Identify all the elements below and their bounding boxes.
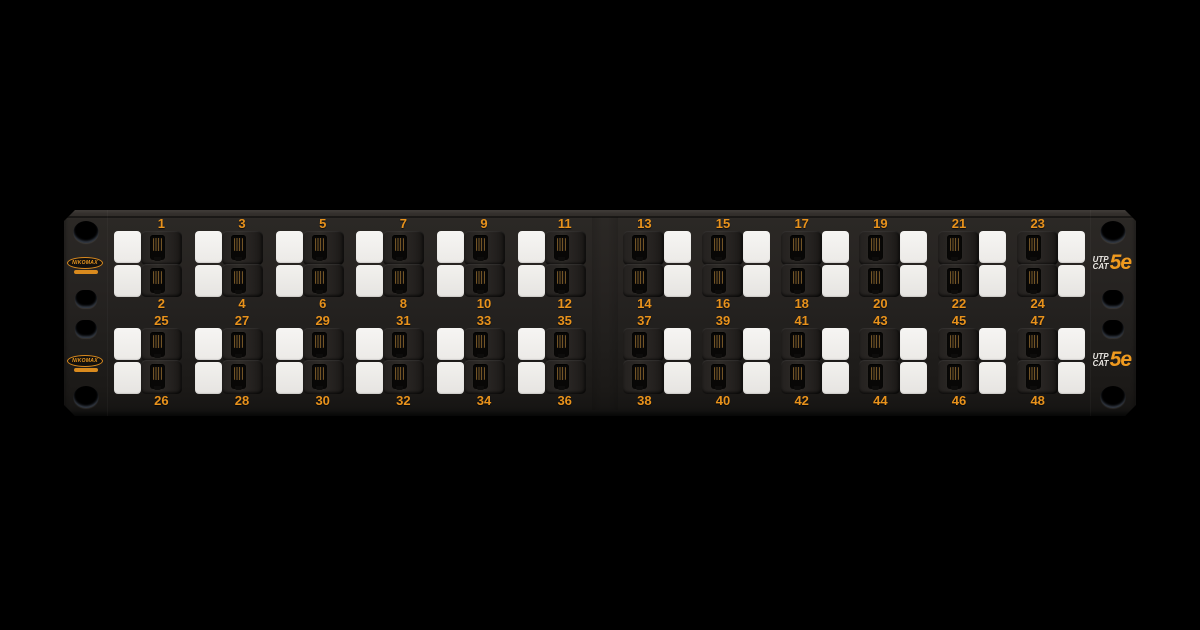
label-pad-top bbox=[1058, 231, 1085, 263]
label-pad bbox=[518, 231, 545, 297]
port-module: 31 32 bbox=[350, 314, 431, 411]
mounting-hole bbox=[1101, 386, 1126, 408]
label-pad bbox=[437, 231, 464, 297]
brand-logo-oval: NIKOMAX bbox=[67, 257, 103, 269]
gold-pins-icon bbox=[871, 335, 880, 348]
brand-name: NIKOMAX bbox=[72, 359, 98, 364]
rj45-socket-icon bbox=[473, 268, 488, 293]
rj45-jack-bottom bbox=[938, 264, 979, 298]
gold-pins-icon bbox=[1029, 367, 1038, 380]
rj45-jack-bottom bbox=[545, 360, 586, 394]
rj45-socket-icon bbox=[312, 268, 327, 293]
label-pad-top bbox=[114, 328, 141, 360]
keystone-pair bbox=[518, 328, 586, 394]
gold-pins-icon bbox=[793, 367, 802, 380]
label-pad bbox=[979, 328, 1006, 394]
rj45-socket-icon bbox=[947, 364, 962, 389]
port-module: 29 30 bbox=[269, 314, 350, 411]
keystone-pair bbox=[437, 328, 505, 394]
rj45-socket-icon bbox=[711, 235, 726, 260]
rj45-jack-top bbox=[938, 231, 979, 265]
rj45-jack-block bbox=[222, 231, 263, 297]
rj45-socket-icon bbox=[473, 364, 488, 389]
label-pad-bottom bbox=[900, 362, 927, 394]
rj45-jack-top bbox=[623, 231, 664, 265]
rj45-jack-block bbox=[545, 231, 586, 297]
rj45-socket-icon bbox=[554, 332, 569, 357]
rj45-jack-top bbox=[222, 328, 263, 362]
port-number-top: 21 bbox=[920, 217, 999, 231]
rj45-jack-top bbox=[1017, 328, 1058, 362]
rj45-socket-icon bbox=[632, 364, 647, 389]
label-pad bbox=[664, 231, 691, 297]
mounting-hole bbox=[74, 386, 99, 408]
gold-pins-icon bbox=[315, 271, 324, 284]
keystone-pair bbox=[276, 231, 344, 297]
rj45-jack-bottom bbox=[303, 360, 344, 394]
gold-pins-icon bbox=[234, 335, 243, 348]
rating-grade-text: 5e bbox=[1110, 351, 1131, 369]
port-number-bottom: 6 bbox=[282, 297, 363, 311]
rj45-socket-icon bbox=[790, 268, 805, 293]
rj45-jack-bottom bbox=[702, 360, 743, 394]
rj45-socket-icon bbox=[554, 268, 569, 293]
port-number-bottom: 22 bbox=[920, 297, 999, 311]
mounting-hole bbox=[1102, 290, 1124, 308]
port-number-bottom: 34 bbox=[444, 394, 525, 408]
rj45-jack-top bbox=[859, 231, 900, 265]
rj45-socket-icon bbox=[947, 235, 962, 260]
rj45-jack-top bbox=[702, 231, 743, 265]
rating-cat-text: CAT bbox=[1093, 263, 1109, 270]
rj45-jack-bottom bbox=[938, 360, 979, 394]
keystone-pair bbox=[781, 231, 849, 297]
port-number-bottom: 24 bbox=[998, 297, 1077, 311]
rj45-jack-top bbox=[141, 231, 182, 265]
label-pad-bottom bbox=[195, 362, 222, 394]
label-pad-bottom bbox=[518, 265, 545, 297]
rating-grade-text: 5e bbox=[1110, 254, 1131, 272]
label-pad bbox=[114, 231, 141, 297]
label-pad-top bbox=[822, 328, 849, 360]
rj45-socket-icon bbox=[790, 332, 805, 357]
label-pad-bottom bbox=[664, 265, 691, 297]
gold-pins-icon bbox=[315, 238, 324, 251]
port-module: 11 12 bbox=[511, 217, 592, 314]
port-group-upper-left: 1 2 3 bbox=[108, 217, 592, 314]
gold-pins-icon bbox=[476, 335, 485, 348]
rj45-jack-block bbox=[141, 231, 182, 297]
rj45-jack-block bbox=[545, 328, 586, 394]
label-pad-bottom bbox=[114, 265, 141, 297]
rj45-jack-top bbox=[383, 328, 424, 362]
label-pad-top bbox=[664, 231, 691, 263]
port-number-top: 47 bbox=[998, 314, 1077, 328]
label-pad-bottom bbox=[518, 362, 545, 394]
label-pad-bottom bbox=[356, 265, 383, 297]
label-pad-top bbox=[822, 231, 849, 263]
label-pad-bottom bbox=[276, 265, 303, 297]
rj45-socket-icon bbox=[312, 332, 327, 357]
gold-pins-icon bbox=[395, 238, 404, 251]
cable-rating-label: UTP CAT 5e bbox=[1093, 254, 1131, 272]
port-module: 5 6 bbox=[269, 217, 350, 314]
gold-pins-icon bbox=[234, 367, 243, 380]
keystone-pair bbox=[938, 328, 1006, 394]
label-pad-top bbox=[664, 328, 691, 360]
rj45-jack-block bbox=[781, 328, 822, 394]
rj45-jack-block bbox=[702, 328, 743, 394]
rj45-socket-icon bbox=[150, 268, 165, 293]
label-pad bbox=[195, 231, 222, 297]
rj45-jack-top bbox=[623, 328, 664, 362]
rj45-socket-icon bbox=[868, 235, 883, 260]
rj45-socket-icon bbox=[392, 235, 407, 260]
label-pad-top bbox=[900, 328, 927, 360]
port-number-top: 45 bbox=[920, 314, 999, 328]
label-pad-bottom bbox=[900, 265, 927, 297]
rj45-jack-block bbox=[938, 231, 979, 297]
port-number-top: 5 bbox=[282, 217, 363, 231]
label-pad-bottom bbox=[743, 265, 770, 297]
brand-logo: NIKOMAX bbox=[67, 257, 105, 274]
rj45-socket-icon bbox=[473, 332, 488, 357]
label-pad bbox=[743, 328, 770, 394]
gold-pins-icon bbox=[1029, 238, 1038, 251]
port-number-top: 39 bbox=[684, 314, 763, 328]
rj45-socket-icon bbox=[312, 235, 327, 260]
gold-pins-icon bbox=[871, 367, 880, 380]
rj45-socket-icon bbox=[632, 268, 647, 293]
mounting-hole bbox=[1102, 320, 1124, 338]
gold-pins-icon bbox=[234, 271, 243, 284]
rj45-jack-block bbox=[859, 328, 900, 394]
keystone-pair bbox=[702, 231, 770, 297]
rj45-socket-icon bbox=[392, 364, 407, 389]
port-module: 47 48 bbox=[1011, 314, 1090, 411]
rj45-jack-bottom bbox=[141, 360, 182, 394]
label-pad-top bbox=[1058, 328, 1085, 360]
rj45-jack-bottom bbox=[464, 264, 505, 298]
rj45-jack-top bbox=[938, 328, 979, 362]
gold-pins-icon bbox=[476, 367, 485, 380]
rj45-socket-icon bbox=[312, 364, 327, 389]
rj45-jack-top bbox=[781, 328, 822, 362]
label-pad-top bbox=[743, 231, 770, 263]
right-mounting-ear: UTP CAT 5e UTP CAT 5e bbox=[1090, 210, 1136, 416]
rj45-jack-bottom bbox=[545, 264, 586, 298]
rj45-jack-top bbox=[303, 328, 344, 362]
rj45-socket-icon bbox=[473, 235, 488, 260]
gold-pins-icon bbox=[793, 335, 802, 348]
rj45-jack-bottom bbox=[464, 360, 505, 394]
label-pad bbox=[900, 231, 927, 297]
port-number-top: 7 bbox=[363, 217, 444, 231]
rating-type-text: UTP CAT bbox=[1093, 256, 1109, 270]
gold-pins-icon bbox=[635, 367, 644, 380]
keystone-pair bbox=[356, 231, 424, 297]
brand-logo-oval: NIKOMAX bbox=[67, 355, 103, 367]
rj45-jack-bottom bbox=[781, 264, 822, 298]
keystone-pair bbox=[276, 328, 344, 394]
rj45-jack-top bbox=[464, 328, 505, 362]
keystone-pair bbox=[623, 328, 691, 394]
port-number-top: 9 bbox=[444, 217, 525, 231]
label-pad-top bbox=[195, 328, 222, 360]
gold-pins-icon bbox=[871, 238, 880, 251]
rj45-socket-icon bbox=[554, 235, 569, 260]
gold-pins-icon bbox=[315, 335, 324, 348]
rj45-jack-block bbox=[702, 231, 743, 297]
rj45-socket-icon bbox=[868, 332, 883, 357]
label-pad-top bbox=[518, 328, 545, 360]
label-pad-bottom bbox=[114, 362, 141, 394]
label-pad-bottom bbox=[356, 362, 383, 394]
brand-logo: NIKOMAX bbox=[67, 355, 105, 372]
port-number-top: 31 bbox=[363, 314, 444, 328]
port-face: 1 2 3 bbox=[108, 210, 1090, 416]
cable-rating-label: UTP CAT 5e bbox=[1093, 351, 1131, 369]
port-group-lower-left: 25 26 27 bbox=[108, 314, 592, 411]
rj45-socket-icon bbox=[947, 332, 962, 357]
label-pad bbox=[518, 328, 545, 394]
rating-cat-text: CAT bbox=[1093, 360, 1109, 367]
port-number-top: 15 bbox=[684, 217, 763, 231]
brand-name: NIKOMAX bbox=[72, 261, 98, 266]
rj45-socket-icon bbox=[392, 268, 407, 293]
port-module: 3 4 bbox=[189, 217, 270, 314]
port-module: 23 24 bbox=[1011, 217, 1090, 314]
port-number-top: 25 bbox=[121, 314, 202, 328]
rj45-jack-bottom bbox=[141, 264, 182, 298]
rj45-socket-icon bbox=[1026, 332, 1041, 357]
gold-pins-icon bbox=[315, 367, 324, 380]
port-module: 7 8 bbox=[350, 217, 431, 314]
rj45-socket-icon bbox=[231, 364, 246, 389]
rj45-jack-block bbox=[938, 328, 979, 394]
port-module: 25 26 bbox=[108, 314, 189, 411]
label-pad bbox=[276, 231, 303, 297]
gold-pins-icon bbox=[395, 367, 404, 380]
rj45-socket-icon bbox=[554, 364, 569, 389]
gold-pins-icon bbox=[950, 335, 959, 348]
label-pad bbox=[743, 231, 770, 297]
label-pad-top bbox=[195, 231, 222, 263]
port-number-top: 13 bbox=[605, 217, 684, 231]
rj45-socket-icon bbox=[711, 364, 726, 389]
port-number-top: 43 bbox=[841, 314, 920, 328]
port-number-bottom: 48 bbox=[998, 394, 1077, 408]
port-number-top: 11 bbox=[524, 217, 605, 231]
keystone-pair bbox=[437, 231, 505, 297]
keystone-pair bbox=[781, 328, 849, 394]
rj45-jack-block bbox=[383, 231, 424, 297]
port-number-bottom: 16 bbox=[684, 297, 763, 311]
port-group-lower-right: 37 38 39 bbox=[618, 314, 1090, 411]
keystone-pair bbox=[859, 328, 927, 394]
rj45-jack-top bbox=[702, 328, 743, 362]
gold-pins-icon bbox=[635, 271, 644, 284]
rj45-jack-bottom bbox=[859, 264, 900, 298]
label-pad-bottom bbox=[979, 265, 1006, 297]
rj45-jack-top bbox=[545, 328, 586, 362]
label-pad-bottom bbox=[195, 265, 222, 297]
rj45-jack-bottom bbox=[303, 264, 344, 298]
gold-pins-icon bbox=[557, 238, 566, 251]
mounting-hole bbox=[74, 221, 99, 243]
port-number-top: 35 bbox=[524, 314, 605, 328]
gold-pins-icon bbox=[153, 335, 162, 348]
label-pad-bottom bbox=[437, 265, 464, 297]
label-pad bbox=[195, 328, 222, 394]
rj45-jack-top bbox=[222, 231, 263, 265]
rj45-socket-icon bbox=[1026, 268, 1041, 293]
keystone-pair bbox=[114, 328, 182, 394]
port-number-bottom: 36 bbox=[524, 394, 605, 408]
port-row-upper: 1 2 3 bbox=[108, 217, 1090, 314]
rj45-jack-block bbox=[464, 328, 505, 394]
label-pad-top bbox=[114, 231, 141, 263]
label-pad bbox=[664, 328, 691, 394]
rj45-jack-block bbox=[859, 231, 900, 297]
rj45-socket-icon bbox=[868, 364, 883, 389]
keystone-pair bbox=[518, 231, 586, 297]
port-number-bottom: 40 bbox=[684, 394, 763, 408]
rj45-socket-icon bbox=[711, 268, 726, 293]
label-pad-top bbox=[518, 231, 545, 263]
rj45-jack-bottom bbox=[859, 360, 900, 394]
port-number-bottom: 26 bbox=[121, 394, 202, 408]
label-pad bbox=[1058, 231, 1085, 297]
label-pad-bottom bbox=[979, 362, 1006, 394]
rj45-jack-block bbox=[141, 328, 182, 394]
port-group-upper-right: 13 14 15 bbox=[618, 217, 1090, 314]
keystone-pair bbox=[859, 231, 927, 297]
rj45-jack-bottom bbox=[383, 264, 424, 298]
gold-pins-icon bbox=[793, 271, 802, 284]
rj45-jack-block bbox=[623, 231, 664, 297]
gold-pins-icon bbox=[714, 271, 723, 284]
rj45-socket-icon bbox=[231, 332, 246, 357]
mounting-hole bbox=[75, 290, 97, 308]
label-pad bbox=[437, 328, 464, 394]
port-number-bottom: 10 bbox=[444, 297, 525, 311]
brand-tagline-bar bbox=[74, 270, 98, 274]
rj45-jack-top bbox=[464, 231, 505, 265]
port-number-bottom: 14 bbox=[605, 297, 684, 311]
rj45-jack-block bbox=[464, 231, 505, 297]
rj45-socket-icon bbox=[868, 268, 883, 293]
keystone-pair bbox=[1017, 231, 1085, 297]
gold-pins-icon bbox=[153, 238, 162, 251]
label-pad-top bbox=[900, 231, 927, 263]
label-pad-bottom bbox=[1058, 362, 1085, 394]
rj45-jack-bottom bbox=[623, 264, 664, 298]
port-number-top: 19 bbox=[841, 217, 920, 231]
rj45-socket-icon bbox=[790, 235, 805, 260]
port-row-lower: 25 26 27 bbox=[108, 314, 1090, 411]
rj45-jack-bottom bbox=[222, 264, 263, 298]
gold-pins-icon bbox=[153, 367, 162, 380]
label-pad bbox=[822, 231, 849, 297]
label-pad-top bbox=[979, 231, 1006, 263]
mounting-hole bbox=[1101, 221, 1126, 243]
label-pad-top bbox=[276, 231, 303, 263]
port-number-bottom: 18 bbox=[762, 297, 841, 311]
port-number-top: 1 bbox=[121, 217, 202, 231]
gold-pins-icon bbox=[714, 367, 723, 380]
gold-pins-icon bbox=[950, 238, 959, 251]
rj45-jack-top bbox=[545, 231, 586, 265]
port-number-top: 3 bbox=[202, 217, 283, 231]
rj45-socket-icon bbox=[632, 235, 647, 260]
label-pad bbox=[114, 328, 141, 394]
gold-pins-icon bbox=[476, 238, 485, 251]
port-number-top: 37 bbox=[605, 314, 684, 328]
rj45-jack-block bbox=[222, 328, 263, 394]
gold-pins-icon bbox=[557, 367, 566, 380]
port-module: 33 34 bbox=[431, 314, 512, 411]
port-number-bottom: 4 bbox=[202, 297, 283, 311]
keystone-pair bbox=[114, 231, 182, 297]
port-number-top: 33 bbox=[444, 314, 525, 328]
keystone-pair bbox=[623, 231, 691, 297]
gold-pins-icon bbox=[1029, 335, 1038, 348]
port-module: 1 2 bbox=[108, 217, 189, 314]
port-number-bottom: 2 bbox=[121, 297, 202, 311]
rj45-jack-bottom bbox=[623, 360, 664, 394]
label-pad-bottom bbox=[743, 362, 770, 394]
rj45-socket-icon bbox=[231, 235, 246, 260]
rj45-jack-bottom bbox=[1017, 360, 1058, 394]
label-pad bbox=[822, 328, 849, 394]
label-pad-top bbox=[437, 328, 464, 360]
rj45-socket-icon bbox=[150, 364, 165, 389]
rating-type-text: UTP CAT bbox=[1093, 353, 1109, 367]
rj45-socket-icon bbox=[392, 332, 407, 357]
port-number-bottom: 30 bbox=[282, 394, 363, 408]
gold-pins-icon bbox=[635, 238, 644, 251]
gold-pins-icon bbox=[635, 335, 644, 348]
rj45-jack-block bbox=[303, 231, 344, 297]
label-pad bbox=[1058, 328, 1085, 394]
gold-pins-icon bbox=[714, 238, 723, 251]
gold-pins-icon bbox=[793, 238, 802, 251]
rj45-jack-top bbox=[141, 328, 182, 362]
label-pad-bottom bbox=[664, 362, 691, 394]
keystone-pair bbox=[195, 328, 263, 394]
label-pad-top bbox=[276, 328, 303, 360]
port-number-bottom: 32 bbox=[363, 394, 444, 408]
gold-pins-icon bbox=[871, 271, 880, 284]
rj45-jack-block bbox=[623, 328, 664, 394]
gold-pins-icon bbox=[950, 367, 959, 380]
port-number-top: 17 bbox=[762, 217, 841, 231]
rj45-jack-top bbox=[1017, 231, 1058, 265]
label-pad-bottom bbox=[276, 362, 303, 394]
label-pad-top bbox=[356, 328, 383, 360]
port-number-bottom: 44 bbox=[841, 394, 920, 408]
label-pad bbox=[356, 328, 383, 394]
rj45-socket-icon bbox=[711, 332, 726, 357]
rj45-jack-block bbox=[1017, 328, 1058, 394]
gold-pins-icon bbox=[557, 335, 566, 348]
port-number-top: 29 bbox=[282, 314, 363, 328]
port-module: 35 36 bbox=[511, 314, 592, 411]
label-pad-top bbox=[743, 328, 770, 360]
gold-pins-icon bbox=[1029, 271, 1038, 284]
rj45-socket-icon bbox=[947, 268, 962, 293]
